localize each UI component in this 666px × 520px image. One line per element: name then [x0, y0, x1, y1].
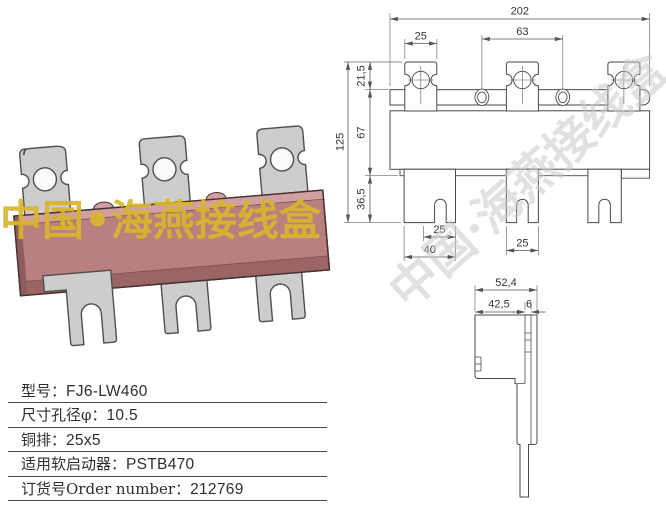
dim-slot-offset: 25 — [433, 224, 445, 236]
spec-value: 212769 — [190, 481, 244, 498]
dim-hole-spacing: 63 — [516, 26, 528, 38]
spec-label: 适用软启动器： — [21, 455, 126, 473]
dim-total-width: 202 — [511, 6, 529, 18]
body-outline — [390, 111, 650, 170]
bottom-tab — [43, 270, 117, 347]
dim-top-offset: 21,5 — [356, 65, 368, 86]
spec-row-model: 型号：FJ6-LW460 — [8, 379, 327, 403]
photo-bottom-tab-front — [43, 270, 117, 347]
dim-bottom-height: 36,5 — [356, 188, 368, 209]
spec-label: 型号： — [21, 382, 66, 400]
oval-hole-inner — [478, 92, 487, 103]
bottom-tab — [588, 169, 621, 222]
bottom-tab — [404, 169, 455, 222]
side-profile — [475, 315, 537, 497]
spec-row-order-number: 订货号Order number：212769 — [8, 477, 327, 501]
front-view-drawing: 202 63 25 125 21,5 67 36,5 25 40 25 — [335, 0, 666, 275]
spec-row-hole-diameter: 尺寸孔径φ：10.5 — [8, 403, 327, 427]
datasheet-page: 中国•海燕接线盒 — [0, 0, 666, 520]
side-view-drawing: 52,4 42,5 6 — [440, 275, 666, 520]
bottom-tab — [506, 169, 538, 222]
spec-value: PSTB470 — [126, 456, 194, 473]
dim-total-height: 125 — [335, 133, 347, 151]
spec-table: 型号：FJ6-LW460 尺寸孔径φ：10.5 铜排：25x5 适用软启动器：P… — [8, 379, 327, 501]
product-photo — [0, 105, 346, 375]
dim-left-tab-width: 40 — [424, 244, 436, 256]
dim-plate-thickness: 6 — [526, 299, 532, 311]
dim-body-height: 67 — [356, 126, 368, 138]
spec-value: 10.5 — [107, 407, 138, 424]
spec-value: FJ6-LW460 — [66, 383, 148, 400]
spec-label: 铜排： — [21, 431, 66, 449]
oval-hole-inner — [559, 92, 568, 103]
dim-mid-tab-width: 25 — [516, 238, 528, 250]
spec-label: 尺寸孔径φ： — [21, 406, 107, 424]
dim-top-tab-width: 25 — [415, 31, 427, 43]
spec-row-busbar: 铜排：25x5 — [8, 428, 327, 452]
dim-body-depth: 42,5 — [488, 299, 509, 311]
dim-total-depth: 52,4 — [495, 277, 516, 289]
spec-value: 25x5 — [66, 432, 101, 449]
spec-label: 订货号Order number： — [21, 480, 190, 498]
spec-row-softstarter: 适用软启动器：PSTB470 — [8, 452, 327, 476]
right-arm — [621, 169, 649, 178]
